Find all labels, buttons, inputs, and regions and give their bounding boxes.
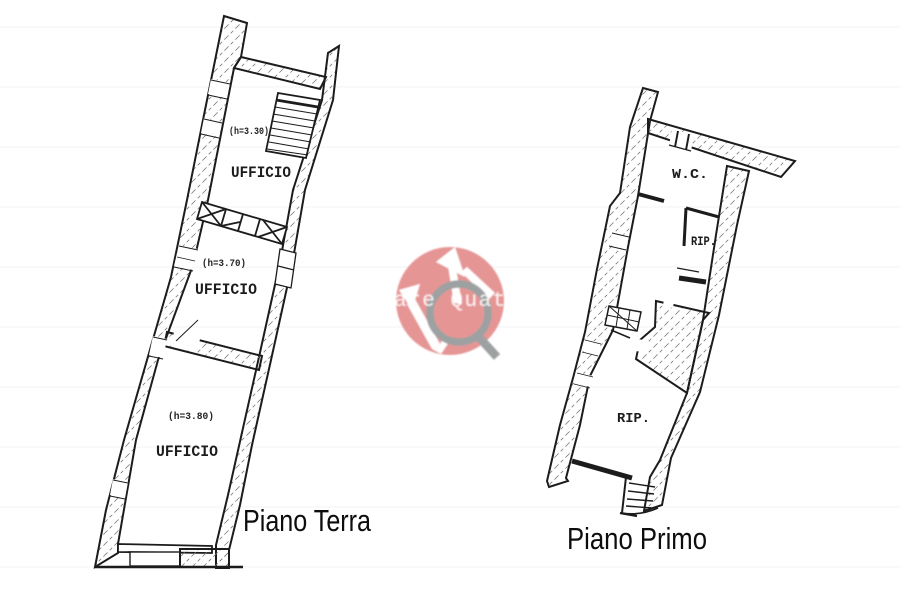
svg-text:Piano Primo: Piano Primo: [567, 521, 707, 556]
svg-text:RIP.: RIP.: [617, 411, 650, 427]
svg-text:W.C.: W.C.: [672, 167, 708, 183]
svg-text:(h=3.70): (h=3.70): [202, 258, 246, 270]
svg-text:UFFICIO: UFFICIO: [156, 443, 218, 461]
svg-text:RIP.: RIP.: [691, 234, 716, 249]
svg-text:UFFICIO: UFFICIO: [195, 281, 257, 299]
svg-text:Piano Terra: Piano Terra: [243, 503, 372, 538]
svg-text:UFFICIO: UFFICIO: [231, 164, 291, 182]
svg-text:(h=3.80): (h=3.80): [168, 411, 214, 423]
svg-text:are Quattro: are Quattro: [394, 290, 549, 313]
svg-text:(h=3.30): (h=3.30): [229, 126, 269, 138]
